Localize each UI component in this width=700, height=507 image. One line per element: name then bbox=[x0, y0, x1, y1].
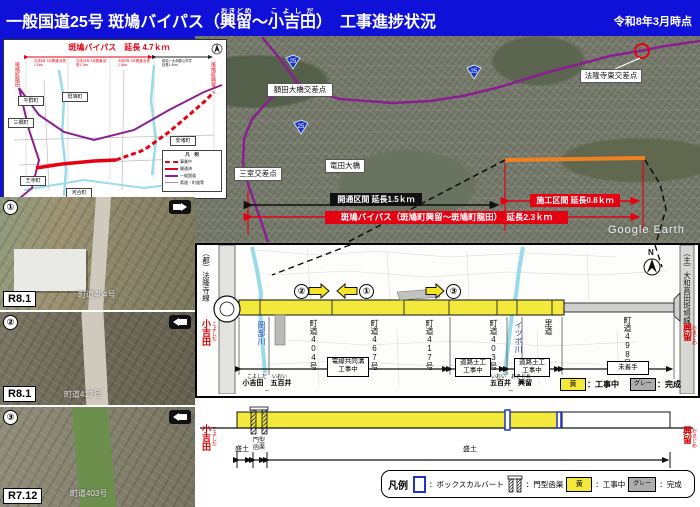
photo-date-label: R7.12 bbox=[3, 488, 42, 504]
road-label-498: 町道498号 bbox=[623, 316, 631, 367]
intersection-label-horyuji-higashi: 法隆寺東交差点 bbox=[580, 69, 642, 83]
photo-number-badge: ② bbox=[3, 315, 18, 330]
google-earth-watermark: Google Earth bbox=[608, 224, 685, 236]
header-bar: 一般国道25号 斑鳩バイパス（興留おきどめ～小吉田こよしだ） 工事進捗状況 令和… bbox=[0, 0, 700, 37]
box-culvert-icon bbox=[557, 412, 561, 428]
road-label-467: 町道467号 bbox=[370, 319, 378, 370]
road-label-horyuji-line: （都）法隆寺線 bbox=[202, 249, 210, 302]
route-shield-icon: 25 bbox=[286, 55, 300, 69]
legend-yellow-desc: ：工事中 bbox=[595, 479, 625, 490]
svg-text:25: 25 bbox=[471, 69, 478, 75]
inset-route-map: 斑鳩バイパス 延長 4.7ｋｍ 平成8年 3月開通 延長1.1km 平成23年 … bbox=[3, 39, 227, 199]
title-post: ） 工事進捗状況 bbox=[316, 14, 436, 31]
town-label-heguri: 平群町 bbox=[18, 96, 44, 106]
plan-legend-gray-desc: ：完成 bbox=[657, 379, 681, 390]
inset-history-3: 令和3年 3月開通 延長1.3km bbox=[118, 60, 151, 68]
inset-history-1: 平成8年 3月開通 延長1.1km bbox=[34, 60, 67, 68]
site-photo-3: ③ R7.12 町道403号 bbox=[0, 407, 195, 507]
route-shield-icon: 25 bbox=[294, 120, 308, 134]
page-title: 一般国道25号 斑鳩バイパス（興留おきどめ～小吉田こよしだ） 工事進捗状況 bbox=[6, 8, 436, 32]
site-photo-1: ① R8.1 町道404号 bbox=[0, 197, 195, 310]
road-label-404: 町道404号 bbox=[309, 319, 317, 370]
town-label-oji: 王寺町 bbox=[20, 176, 46, 186]
photo-date-label: R8.1 bbox=[3, 386, 36, 402]
legend-swatch-national bbox=[165, 175, 178, 177]
title-pre: 一般国道25号 斑鳩バイパス（ bbox=[6, 14, 220, 31]
profile-endpoint-kana-okidome: おきどめ bbox=[691, 428, 696, 448]
profile-construction-bar bbox=[237, 412, 562, 428]
profile-seg-embankment-1: 盛土 bbox=[235, 444, 249, 454]
title-okidome-ruby: おきどめ bbox=[220, 8, 252, 15]
title-koyoshida-ruby: こよしだ bbox=[268, 8, 316, 15]
legend-swatch-opened bbox=[165, 168, 178, 170]
page: 一般国道25号 斑鳩バイパス（興留おきどめ～小吉田こよしだ） 工事進捗状況 令和… bbox=[0, 0, 700, 507]
profile-seg-portal: 門型函渠 bbox=[253, 438, 265, 451]
photo-warehouse bbox=[14, 249, 86, 291]
work-box-notstarted: 未着手 bbox=[607, 361, 649, 375]
inset-endpoint-right: 斑鳩町興留 bbox=[207, 62, 215, 87]
box-culvert-icon bbox=[505, 410, 510, 430]
inset-endpoint-left: 斑鳩町龍田 bbox=[11, 62, 19, 87]
horyuji-leader-line bbox=[615, 58, 640, 69]
building bbox=[275, 315, 285, 345]
legend-swatch-local bbox=[165, 182, 178, 183]
legend-yellow-swatch: 黄 bbox=[566, 477, 592, 492]
construction-section-label: 施工区間 延長0.8ｋｍ bbox=[530, 194, 620, 207]
bottom-legend: 凡例 ：ボックスカルバート ：門型函渠 黄 ：工事中 グレー ：完成 bbox=[381, 470, 695, 498]
bridge-label-tatsuta: 竜田大橋 bbox=[325, 159, 365, 173]
river-label-itsubo: イツボ川 bbox=[514, 321, 522, 353]
endpoint-label-okidome: 興留 bbox=[682, 323, 691, 341]
inset-compass-icon bbox=[212, 44, 222, 54]
camera-marker-2: ② bbox=[294, 284, 309, 299]
title-koyoshida: 小吉田 bbox=[268, 14, 316, 31]
route-shield-icon: 25 bbox=[467, 65, 481, 79]
north-arrow-icon bbox=[644, 259, 660, 275]
camera-marker-3: ③ bbox=[446, 284, 461, 299]
portal-culvert-legend-icon bbox=[507, 475, 523, 493]
profile-endpoint-koyoshida: 小吉田 bbox=[201, 424, 210, 451]
intersection-label-mimuro: 三室交差点 bbox=[234, 167, 282, 181]
town-label-ikaruga: 斑鳩町 bbox=[62, 92, 88, 102]
north-label: N bbox=[648, 248, 654, 257]
photo-caption: 町道403号 bbox=[70, 488, 107, 499]
road-label-rido: 里道 bbox=[544, 319, 552, 335]
inset-legend-item: 開通済 bbox=[180, 166, 192, 172]
legend-title: 凡例 bbox=[388, 477, 408, 492]
photo-caption: 町道404号 bbox=[78, 289, 115, 300]
work-box-utility: 電線共同溝工事中 bbox=[327, 357, 369, 377]
profile-section: 盛土 門型函渠 盛土 小吉田 こよしだ 興留 おきどめ 凡例 ：ボックスカルバー… bbox=[195, 398, 700, 507]
svg-text:25: 25 bbox=[290, 59, 297, 65]
plan-legend-yellow-swatch: 黄 bbox=[560, 378, 586, 391]
legend-gray-desc: ：完成 bbox=[659, 479, 682, 490]
photo-caption: 町道417号 bbox=[64, 389, 101, 400]
route25-branch-line bbox=[243, 82, 297, 242]
river-label-okabe: 岡部川 bbox=[257, 321, 265, 345]
inset-history-2: 平成23年 3月開通 延長1.7km bbox=[76, 60, 109, 68]
endpoint-label-koyoshida: 小吉田 bbox=[201, 319, 210, 346]
intersection-label-west: 額田大橋交差点 bbox=[267, 83, 333, 97]
boundary-ioi-okidome: いおい おきどめ 五百井 興留 ⇔ bbox=[487, 375, 535, 394]
boundary-koyoshida-ioi: こよしだ いおい 小吉田 五百井 ⇔ bbox=[241, 375, 293, 394]
photo-date-label: R8.1 bbox=[3, 291, 36, 307]
road-label-yamatotakada-line: （主）大和高田斑鳩線 bbox=[683, 249, 691, 324]
legend-box-culvert-desc: ：ボックスカルバート bbox=[429, 479, 504, 490]
camera-marker-1: ① bbox=[359, 284, 374, 299]
opened-section-label: 開通区間 延長1.5ｋｍ bbox=[330, 193, 422, 206]
construction-road bbox=[239, 300, 564, 315]
photo-number-badge: ③ bbox=[3, 410, 18, 425]
inset-legend-item: 一般国道 bbox=[180, 173, 196, 179]
svg-text:25: 25 bbox=[298, 124, 305, 130]
town-label-sango: 三郷町 bbox=[8, 118, 34, 128]
inset-history-4: 斑鳩～大和郡山市境 延長1.4km bbox=[162, 60, 195, 68]
plan-view-panel: N ② ① ③ （都）法隆寺線 （主）大和高田斑鳩線 町道404号 町道467号… bbox=[195, 243, 700, 398]
photo-number-badge: ① bbox=[3, 200, 18, 215]
title-tilde: ～ bbox=[252, 14, 268, 31]
date-note: 令和8年3月時点 bbox=[614, 13, 692, 29]
inset-legend-item: 事業中 bbox=[180, 159, 192, 165]
work-box-earthwork-1: 道路土工工事中 bbox=[455, 358, 491, 377]
town-label-ando: 安堵町 bbox=[170, 136, 196, 146]
plan-legend-yellow-desc: ：工事中 bbox=[587, 379, 619, 390]
title-okidome: 興留 bbox=[220, 14, 252, 31]
road-label-417: 町道417号 bbox=[425, 319, 433, 370]
plan-legend-gray-swatch: グレー bbox=[630, 378, 656, 391]
legend-swatch-project bbox=[165, 161, 178, 163]
site-photo-2: ② R8.1 町道417号 bbox=[0, 312, 195, 405]
legend-portal-desc: ：門型函渠 bbox=[526, 479, 564, 490]
aerial-map: 25 25 25 額田大橋交差点 法隆寺東交差点 三室交差点 竜田大橋 開通区間… bbox=[195, 36, 700, 243]
inset-title: 斑鳩バイパス 延長 4.7ｋｍ bbox=[34, 42, 204, 53]
completed-road bbox=[564, 303, 674, 312]
camera-direction-icon bbox=[169, 410, 191, 424]
profile-completed-bar bbox=[562, 412, 670, 428]
camera-direction-icon bbox=[169, 315, 191, 329]
box-culvert-legend-icon bbox=[413, 476, 426, 493]
profile-endpoint-kana-koyoshida: こよしだ bbox=[211, 426, 216, 446]
endpoint-kana-okidome: おきどめ bbox=[691, 325, 696, 345]
construction-section-line bbox=[505, 158, 645, 160]
legend-gray-swatch: グレー bbox=[628, 477, 656, 492]
camera-direction-icon bbox=[169, 200, 191, 214]
bypass-total-label: 斑鳩バイパス（斑鳩町興留～斑鳩町龍田） 延長2.3ｋｍ bbox=[325, 211, 568, 224]
inset-legend-item: 県道・町道等 bbox=[180, 180, 204, 186]
inset-legend: 凡 例 事業中 開通済 一般国道 県道・町道等 bbox=[162, 150, 222, 192]
profile-endpoint-okidome: 興留 bbox=[682, 426, 691, 444]
profile-graphics bbox=[195, 398, 700, 468]
profile-seg-embankment-2: 盛土 bbox=[463, 444, 477, 454]
endpoint-kana-koyoshida: こよしだ bbox=[211, 321, 216, 341]
